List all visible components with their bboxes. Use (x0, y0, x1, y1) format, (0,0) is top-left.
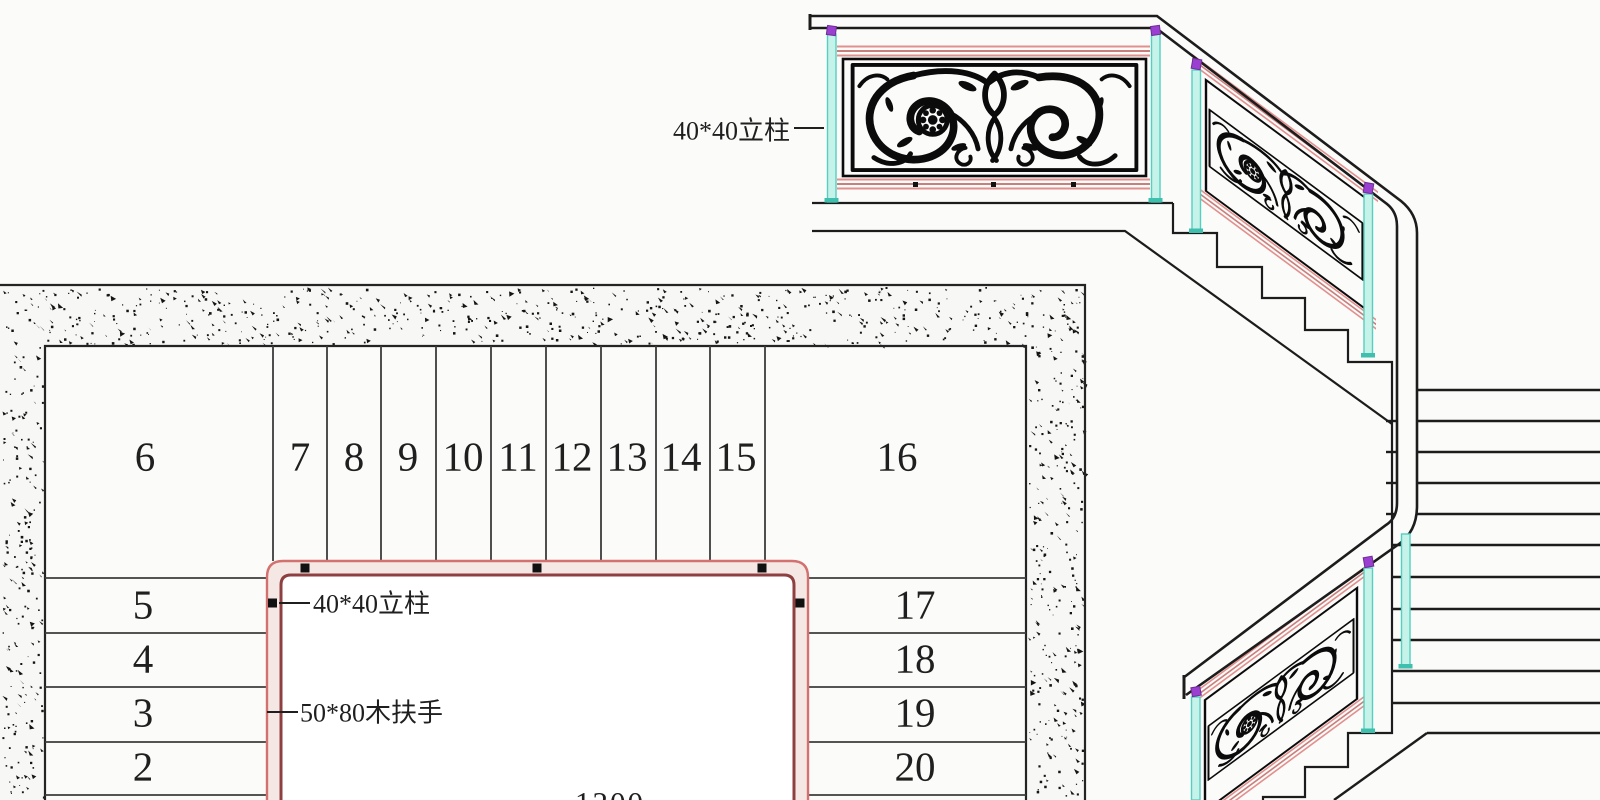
elevation-post-label: 40*40立柱 (640, 111, 790, 148)
staircase-drawing (0, 0, 1600, 800)
tread-number-18: 18 (895, 639, 936, 680)
tread-number-8: 8 (344, 437, 365, 478)
cad-drawing-canvas: 40*40立柱 40*40立柱 50*80木扶手 1200 6789101112… (0, 0, 1600, 800)
tread-number-11: 11 (498, 437, 537, 478)
tread-number-6: 6 (135, 437, 156, 478)
tread-number-3: 3 (133, 693, 154, 734)
tread-number-19: 19 (895, 693, 936, 734)
tread-number-5: 5 (133, 585, 154, 626)
elevation-view (794, 14, 1600, 800)
stairwell-dimension: 1200 (575, 785, 645, 800)
tread-number-14: 14 (661, 437, 702, 478)
tread-number-4: 4 (133, 639, 154, 680)
tread-number-9: 9 (398, 437, 419, 478)
railing-panel-middle (1192, 55, 1378, 331)
tread-number-20: 20 (895, 747, 936, 788)
tread-number-17: 17 (895, 585, 936, 626)
tread-number-15: 15 (716, 437, 757, 478)
lower-step-lines (1334, 390, 1600, 800)
tread-number-12: 12 (552, 437, 593, 478)
plan-handrail-label: 50*80木扶手 (300, 693, 443, 730)
tread-number-16: 16 (877, 437, 918, 478)
tread-number-13: 13 (607, 437, 648, 478)
tread-number-10: 10 (443, 437, 484, 478)
plan-post-label: 40*40立柱 (313, 584, 430, 621)
tread-number-7: 7 (290, 437, 311, 478)
tread-number-2: 2 (133, 747, 154, 788)
railing-panel-top (837, 47, 1150, 189)
railing-panel-lower (1193, 564, 1369, 800)
